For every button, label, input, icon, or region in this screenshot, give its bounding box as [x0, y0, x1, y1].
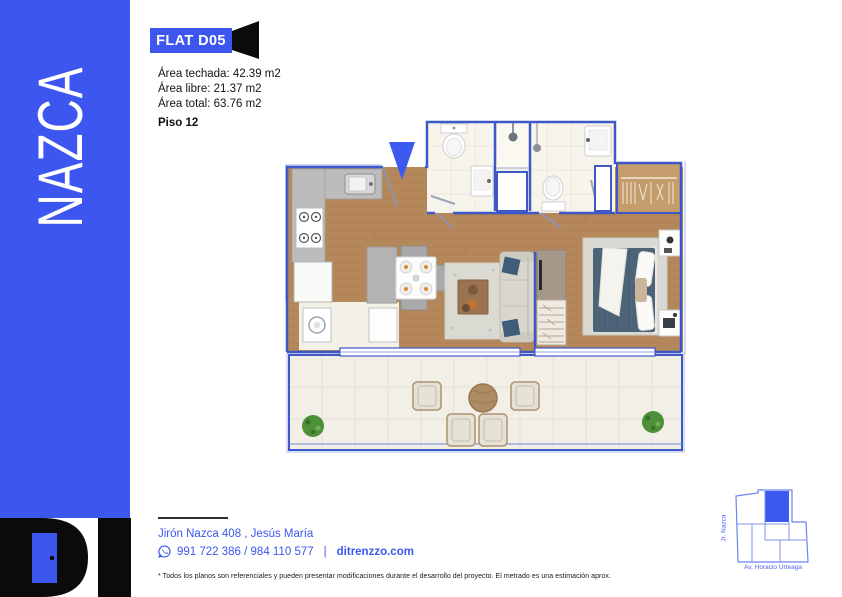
- di-logo: [0, 518, 132, 597]
- flyer-page: NAZCA FLAT D05 Área techada: 42.39 m2 Ár…: [0, 0, 842, 597]
- laundry: [299, 302, 399, 350]
- map-street-horizontal: Av. Horacio Urteaga: [744, 564, 802, 571]
- phone-site-divider: |: [324, 546, 327, 558]
- whatsapp-icon: [158, 545, 171, 558]
- area-total: Área total: 63.76 m2: [158, 97, 281, 112]
- phone-numbers[interactable]: 991 722 386 / 984 110 577: [177, 546, 314, 558]
- map-highlight-lot: [765, 491, 789, 522]
- unit-badge: FLAT D05: [150, 28, 232, 53]
- door-icon: [231, 19, 260, 61]
- area-free: Área libre: 21.37 m2: [158, 82, 281, 97]
- phone-row[interactable]: 991 722 386 / 984 110 577 | ditrenzzo.co…: [158, 545, 414, 558]
- floor-label: Piso 12: [158, 117, 198, 129]
- tv-console: [535, 250, 566, 350]
- address: Jirón Nazca 408 , Jesús María: [158, 528, 313, 540]
- bedroom: [583, 230, 681, 336]
- footer-divider: [158, 517, 228, 519]
- map-street-vertical: Jr. Nazca: [721, 514, 728, 541]
- closet: [617, 163, 681, 213]
- building-name: NAZCA: [23, 67, 98, 228]
- sidebar: NAZCA: [0, 0, 130, 518]
- floor-plan: [285, 110, 700, 480]
- area-summary: Área techada: 42.39 m2 Área libre: 21.37…: [158, 67, 281, 112]
- disclaimer: * Todos los planos son referenciales y p…: [158, 573, 611, 580]
- living-room: [445, 252, 534, 342]
- location-map: Jr. Nazca Av. Horacio Urteaga: [703, 482, 823, 578]
- logo-doorknob-icon: [50, 556, 55, 561]
- area-roofed: Área techada: 42.39 m2: [158, 67, 281, 82]
- website-link[interactable]: ditrenzzo.com: [337, 546, 414, 558]
- unit-badge-label: FLAT D05: [156, 33, 226, 49]
